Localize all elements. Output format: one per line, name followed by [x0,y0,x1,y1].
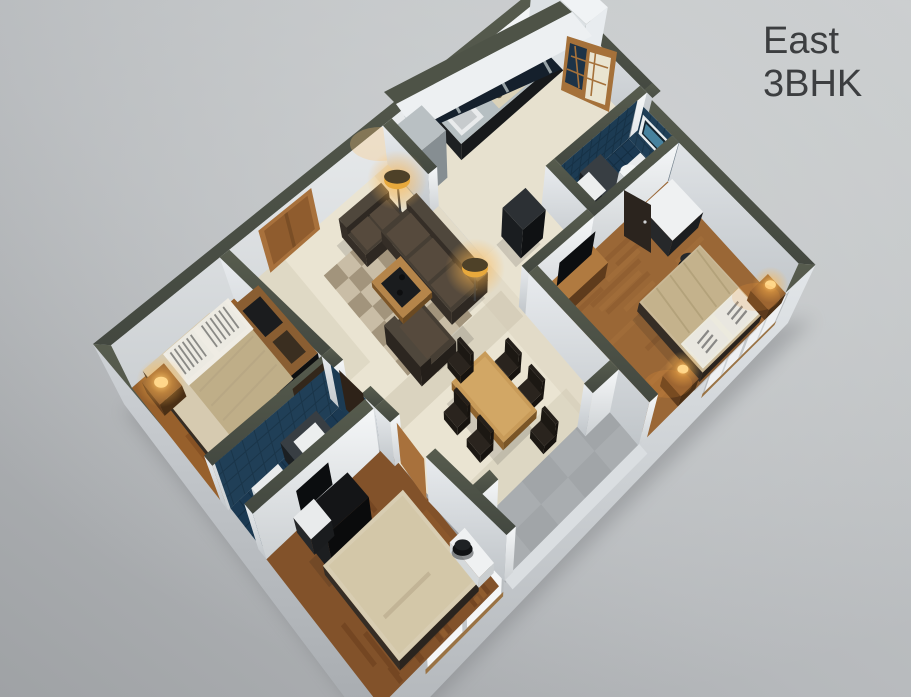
svg-text:East: East [763,20,839,62]
svg-text:3BHK: 3BHK [763,63,862,105]
